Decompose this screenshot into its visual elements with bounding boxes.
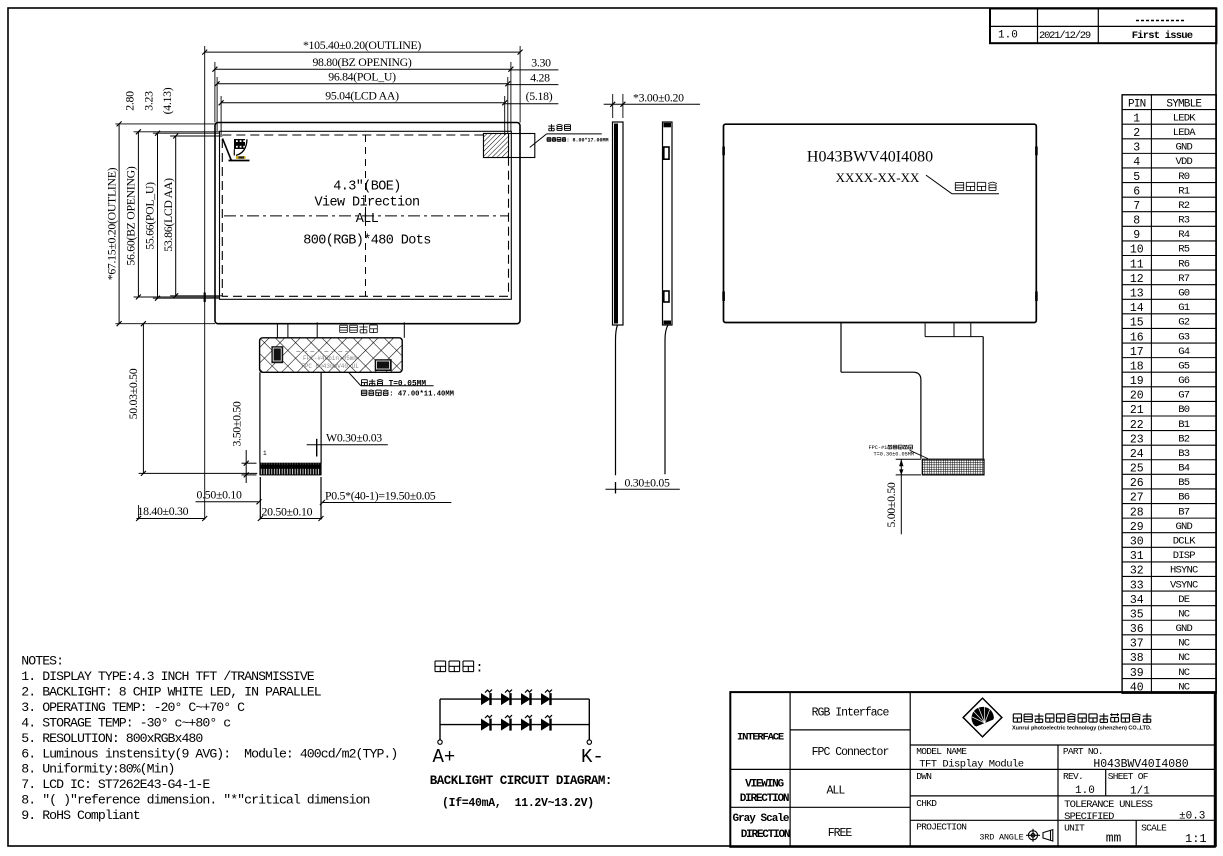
- svg-text:*105.40±0.20(OUTLINE): *105.40±0.20(OUTLINE): [303, 38, 421, 52]
- svg-text:B4: B4: [1178, 463, 1190, 475]
- svg-text:DCLK: DCLK: [1173, 536, 1197, 548]
- svg-text:3.50±0.50: 3.50±0.50: [230, 401, 244, 446]
- svg-text:2021/12/29: 2021/12/29: [1039, 30, 1091, 42]
- svg-text:3: 3: [1133, 142, 1140, 155]
- svg-text:mm: mm: [1106, 831, 1122, 846]
- svg-text:30: 30: [1130, 536, 1144, 549]
- svg-text:*67.15±0.20(OUTLINE): *67.15±0.20(OUTLINE): [105, 167, 119, 280]
- svg-text:38: 38: [1130, 652, 1144, 665]
- svg-text:B3: B3: [1178, 448, 1190, 460]
- svg-text:±0.3: ±0.3: [1179, 811, 1205, 823]
- svg-text:H043BWV40I4080: H043BWV40I4080: [1093, 758, 1188, 771]
- svg-text:DWN: DWN: [916, 771, 931, 782]
- svg-text:B6: B6: [1178, 492, 1190, 504]
- svg-text:R7: R7: [1178, 273, 1190, 285]
- svg-text:6: 6: [1133, 185, 1140, 198]
- svg-text:P0.5*(40-1)=19.50±0.05: P0.5*(40-1)=19.50±0.05: [325, 489, 436, 503]
- svg-text:VSYNC: VSYNC: [1170, 579, 1198, 591]
- svg-text:FPC-#1: FPC-#1: [869, 445, 888, 451]
- svg-text:DIRECTION: DIRECTION: [741, 829, 790, 841]
- svg-text:G1: G1: [1178, 302, 1190, 314]
- svg-text:4: 4: [1133, 156, 1140, 169]
- svg-text:NC: NC: [1178, 667, 1190, 679]
- svg-text::: :: [475, 661, 483, 677]
- svg-text:19: 19: [1130, 375, 1144, 388]
- svg-text:A+: A+: [433, 746, 456, 768]
- svg-text:5: 5: [1133, 171, 1140, 184]
- svg-text:26: 26: [1130, 477, 1144, 490]
- svg-text:ALL: ALL: [827, 785, 846, 798]
- svg-text:18: 18: [1130, 360, 1144, 373]
- svg-text:24: 24: [1130, 448, 1144, 461]
- svg-text:R5: R5: [1178, 244, 1190, 256]
- svg-text:15: 15: [1130, 317, 1144, 330]
- svg-text:G4: G4: [1178, 346, 1190, 358]
- svg-text:MODEL NAME: MODEL NAME: [916, 746, 967, 757]
- svg-text:G2: G2: [1178, 317, 1190, 329]
- svg-text:33: 33: [1130, 579, 1144, 592]
- svg-text:PROJECTION: PROJECTION: [916, 822, 966, 833]
- svg-text:17: 17: [1130, 346, 1144, 359]
- svg-text:B1: B1: [1178, 419, 1190, 431]
- svg-text:32: 32: [1130, 565, 1144, 578]
- svg-text:3.30: 3.30: [531, 56, 551, 70]
- svg-text:20.50±0.10: 20.50±0.10: [262, 504, 313, 518]
- svg-text:INTERFACE: INTERFACE: [737, 732, 784, 744]
- svg-text:REV.: REV.: [1063, 771, 1083, 782]
- svg-text:SYMBLE: SYMBLE: [1166, 98, 1202, 110]
- svg-text:TOLERANCE UNLESS: TOLERANCE UNLESS: [1064, 799, 1153, 811]
- svg-text:R4: R4: [1178, 229, 1190, 241]
- svg-text:5. RESOLUTION: 800xRGBx480: 5. RESOLUTION: 800xRGBx480: [21, 731, 203, 746]
- svg-text:: 8.00*17.00MM: : 8.00*17.00MM: [567, 137, 609, 143]
- svg-text:13: 13: [1130, 287, 1144, 300]
- svg-text:9. RoHS Compliant: 9. RoHS Compliant: [21, 808, 139, 823]
- svg-text:(If=40mA, 11.2V~13.2V): (If=40mA, 11.2V~13.2V): [442, 797, 594, 810]
- svg-text:TFT Display Module: TFT Display Module: [919, 759, 1024, 771]
- svg-text:5.00±0.50: 5.00±0.50: [884, 482, 898, 527]
- svg-text:34: 34: [1130, 594, 1144, 607]
- svg-text:FPC H0430WV40 UL: FPC H0430WV40 UL: [301, 363, 359, 370]
- svg-text:LEDK: LEDK: [1173, 112, 1197, 124]
- svg-text:SPECIFIED: SPECIFIED: [1064, 811, 1114, 823]
- svg-text:K-: K-: [581, 746, 604, 768]
- svg-text:*3.00±0.20: *3.00±0.20: [633, 91, 684, 105]
- svg-text:T=0.30±0.05MM: T=0.30±0.05MM: [874, 452, 914, 458]
- svg-text:PIN: PIN: [1128, 98, 1146, 110]
- svg-text:DISP: DISP: [1173, 550, 1196, 562]
- svg-text:23: 23: [1130, 433, 1144, 446]
- svg-text:LEDA: LEDA: [1173, 127, 1197, 139]
- svg-text:20: 20: [1130, 390, 1144, 403]
- svg-text:1.0: 1.0: [998, 30, 1018, 42]
- svg-text:XXXX-XX-XX: XXXX-XX-XX: [836, 170, 920, 185]
- svg-text:18.40±0.30: 18.40±0.30: [138, 504, 189, 518]
- svg-text:31: 31: [1130, 550, 1144, 563]
- svg-text:14: 14: [1130, 302, 1144, 315]
- svg-text:NOTES:: NOTES:: [21, 654, 63, 669]
- svg-text:21: 21: [1130, 404, 1144, 417]
- svg-text:1:1: 1:1: [1185, 832, 1207, 846]
- svg-text:G6: G6: [1178, 375, 1190, 387]
- svg-text:B2: B2: [1178, 433, 1190, 445]
- svg-text:800(RGB)*480 Dots: 800(RGB)*480 Dots: [303, 234, 431, 249]
- svg-text:50.03±0.50: 50.03±0.50: [126, 368, 140, 419]
- svg-text:55.66(POL_U): 55.66(POL_U): [143, 182, 157, 250]
- svg-text:FPC-#40pin-05mm: FPC-#40pin-05mm: [303, 355, 357, 362]
- svg-text:G3: G3: [1178, 331, 1190, 343]
- svg-text:36: 36: [1130, 623, 1144, 636]
- svg-text:FPC Connector: FPC Connector: [812, 746, 889, 759]
- svg-text:BACKLIGHT CIRCUIT DIAGRAM:: BACKLIGHT CIRCUIT DIAGRAM:: [430, 774, 612, 788]
- svg-text:7: 7: [1133, 200, 1140, 213]
- svg-text:NC: NC: [1178, 652, 1190, 664]
- svg-text:Gray Scale: Gray Scale: [732, 813, 789, 825]
- svg-text:HSYNC: HSYNC: [1170, 565, 1198, 577]
- svg-text:8. ″( )″reference dimension. ″: 8. ″( )″reference dimension. ″*″critical…: [21, 793, 369, 808]
- svg-text:B5: B5: [1178, 477, 1190, 489]
- svg-text:3.23: 3.23: [142, 91, 156, 111]
- svg-text:NC: NC: [1178, 608, 1190, 620]
- svg-text:(5.18): (5.18): [526, 89, 553, 103]
- svg-text:16: 16: [1130, 331, 1144, 344]
- svg-text:VDD: VDD: [1176, 156, 1193, 168]
- svg-text:First issue: First issue: [1132, 30, 1193, 42]
- svg-text:: 47.00*11.40MM: : 47.00*11.40MM: [389, 391, 454, 399]
- svg-text:25: 25: [1130, 463, 1144, 476]
- svg-text:11: 11: [1130, 258, 1144, 271]
- svg-text:1/1: 1/1: [1130, 786, 1150, 798]
- svg-text:6. Luminous instensity(9 AVG):: 6. Luminous instensity(9 AVG): Module: 4…: [21, 746, 397, 761]
- svg-text:0.50±0.10: 0.50±0.10: [197, 488, 242, 502]
- svg-text:3RD ANGLE: 3RD ANGLE: [979, 833, 1023, 843]
- svg-text:R3: R3: [1178, 215, 1190, 227]
- svg-text:T=0.05MM: T=0.05MM: [384, 381, 426, 389]
- svg-text:1: 1: [1133, 112, 1140, 125]
- svg-text:RGB Interface: RGB Interface: [812, 707, 890, 720]
- svg-text:4. STORAGE TEMP: -30° c~+80° c: 4. STORAGE TEMP: -30° c~+80° c: [21, 715, 230, 730]
- svg-text:2.80: 2.80: [123, 91, 137, 111]
- svg-text:Xunrui photoelectric technolog: Xunrui photoelectric technology (shenzhe…: [1012, 726, 1152, 732]
- svg-text:G7: G7: [1178, 390, 1190, 402]
- svg-text:R0: R0: [1178, 171, 1190, 183]
- svg-text:56.60(BZ OPENING): 56.60(BZ OPENING): [124, 166, 138, 265]
- svg-text:37: 37: [1130, 638, 1144, 651]
- svg-text:NC: NC: [1178, 638, 1190, 650]
- svg-text:95.04(LCD AA): 95.04(LCD AA): [325, 89, 399, 103]
- svg-text:27: 27: [1130, 492, 1144, 505]
- svg-text:SHEET OF: SHEET OF: [1108, 771, 1149, 782]
- svg-text:1: 1: [263, 450, 267, 457]
- svg-text:2: 2: [1133, 127, 1140, 140]
- svg-text:3. OPERATING TEMP: -20° C~+70°: 3. OPERATING TEMP: -20° C~+70° C: [21, 700, 245, 715]
- svg-text:B7: B7: [1178, 506, 1190, 518]
- svg-text:ALL: ALL: [356, 212, 379, 227]
- svg-text:1. DISPLAY TYPE:4.3 INCH TFT /: 1. DISPLAY TYPE:4.3 INCH TFT /TRANSMISSI…: [21, 669, 315, 684]
- svg-text:R2: R2: [1178, 200, 1190, 212]
- svg-text:8. Uniformity:80%(Min): 8. Uniformity:80%(Min): [21, 762, 174, 777]
- svg-text:DE: DE: [1178, 594, 1190, 606]
- svg-text:View Direction: View Direction: [314, 196, 419, 211]
- svg-text:22: 22: [1130, 419, 1144, 432]
- svg-text:28: 28: [1130, 506, 1144, 519]
- svg-text:8: 8: [1133, 215, 1140, 228]
- svg-text:0.30±0.05: 0.30±0.05: [625, 475, 670, 489]
- svg-text:10: 10: [1130, 244, 1144, 257]
- svg-text:(4.13): (4.13): [160, 87, 174, 114]
- svg-text:2. BACKLIGHT: 8 CHIP WHITE LED: 2. BACKLIGHT: 8 CHIP WHITE LED, IN PARAL…: [21, 684, 321, 699]
- svg-text:35: 35: [1130, 608, 1144, 621]
- svg-text:VIEWING: VIEWING: [745, 779, 784, 791]
- svg-text:53.86(LCD AA): 53.86(LCD AA): [161, 178, 175, 252]
- svg-text:SCALE: SCALE: [1141, 823, 1167, 834]
- svg-text:H043BWV40I4080: H043BWV40I4080: [807, 149, 933, 166]
- svg-text:G5: G5: [1178, 360, 1190, 372]
- svg-text:R6: R6: [1178, 258, 1190, 270]
- svg-text:9: 9: [1133, 229, 1140, 242]
- svg-text:12: 12: [1130, 273, 1144, 286]
- svg-text:PART NO.: PART NO.: [1063, 746, 1103, 757]
- svg-text:GND: GND: [1176, 623, 1193, 635]
- svg-text:FREE: FREE: [828, 827, 853, 840]
- svg-text:DIRECTION: DIRECTION: [740, 793, 789, 805]
- svg-text:B0: B0: [1178, 404, 1190, 416]
- svg-text:4.28: 4.28: [530, 71, 550, 85]
- svg-text:CHKD: CHKD: [916, 798, 937, 809]
- svg-text:39: 39: [1130, 667, 1144, 680]
- svg-text:GND: GND: [1176, 521, 1193, 533]
- svg-text:G0: G0: [1178, 287, 1190, 299]
- svg-text:29: 29: [1130, 521, 1144, 534]
- svg-text:GND: GND: [1176, 142, 1193, 154]
- svg-text:1.0: 1.0: [1075, 785, 1095, 797]
- svg-text:W0.30±0.03: W0.30±0.03: [326, 431, 382, 445]
- svg-text:R1: R1: [1178, 185, 1190, 197]
- svg-text:7. LCD IC: ST7262E43-G4-1-E: 7. LCD IC: ST7262E43-G4-1-E: [21, 777, 210, 792]
- svg-text:96.84(POL_U): 96.84(POL_U): [328, 70, 396, 84]
- svg-text:UNIT: UNIT: [1064, 823, 1085, 834]
- svg-text:4.3″(BOE): 4.3″(BOE): [333, 180, 401, 195]
- svg-text:98.80(BZ OPENING): 98.80(BZ OPENING): [312, 55, 411, 69]
